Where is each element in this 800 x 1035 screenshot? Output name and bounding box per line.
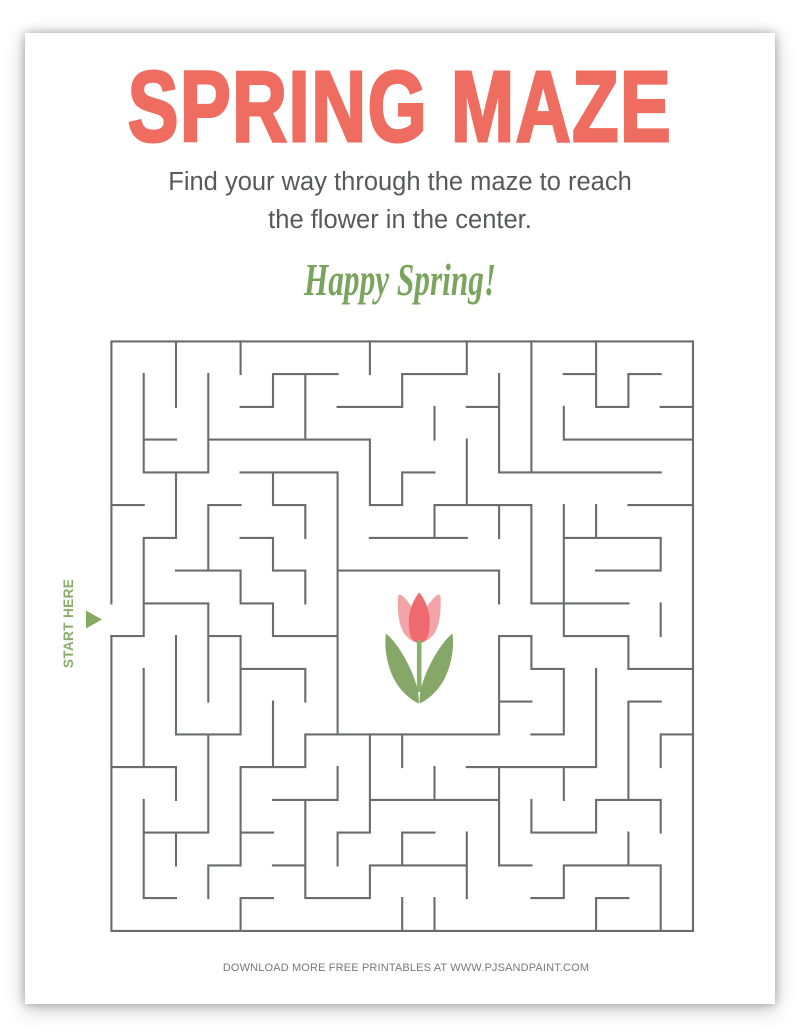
svg-text:START HERE: START HERE [61, 579, 76, 668]
